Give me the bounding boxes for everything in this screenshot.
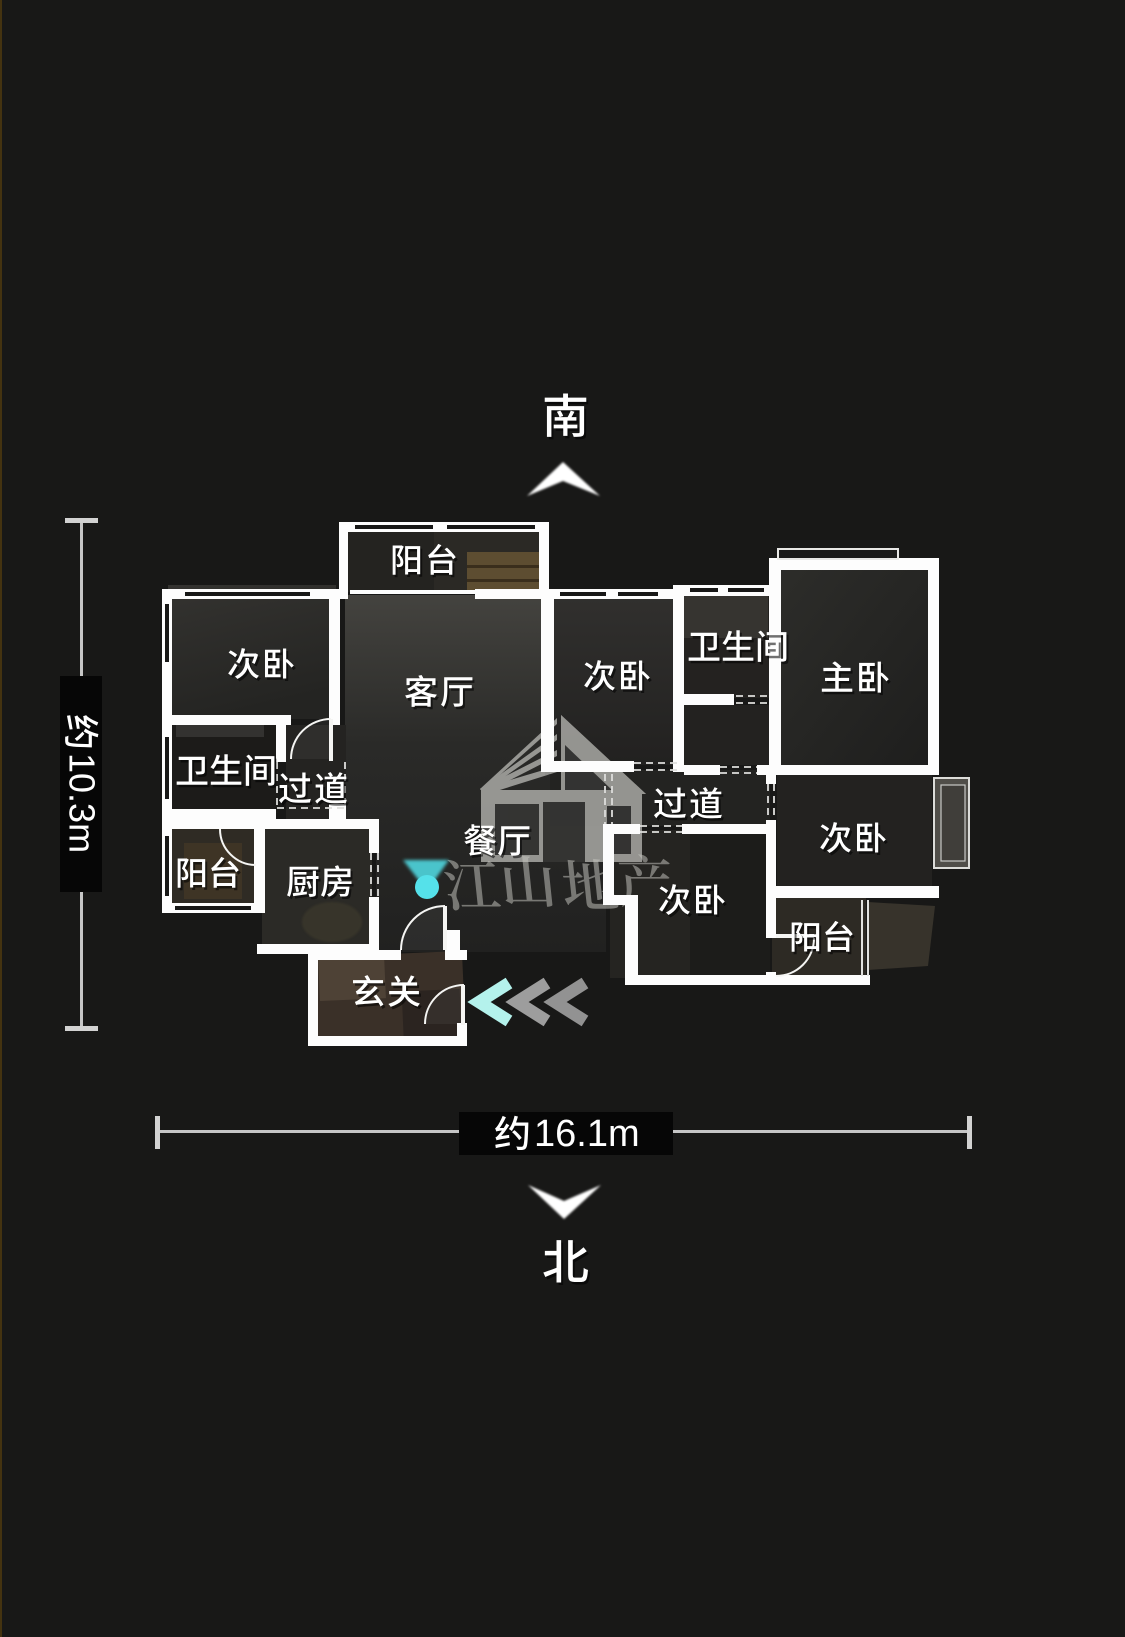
svg-text:16.1m: 16.1m bbox=[534, 1113, 640, 1155]
svg-text:10.3m: 10.3m bbox=[62, 753, 103, 853]
